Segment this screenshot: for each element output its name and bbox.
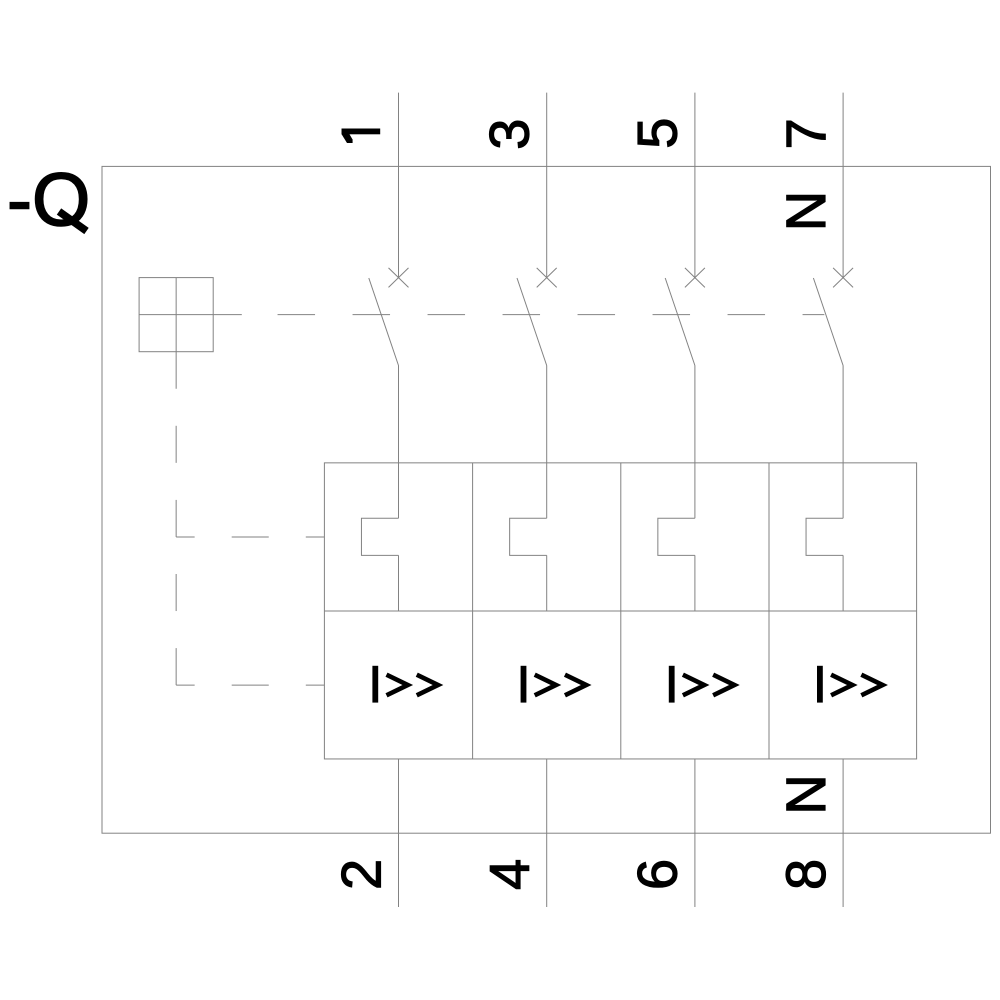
svg-text:7: 7 [774, 118, 837, 149]
svg-text:5: 5 [626, 118, 689, 149]
svg-text:N: N [774, 191, 837, 231]
svg-text:3: 3 [478, 119, 541, 150]
svg-text:2: 2 [329, 859, 392, 890]
svg-text:N: N [774, 774, 837, 814]
svg-text:4: 4 [478, 859, 541, 890]
svg-text:6: 6 [626, 859, 689, 890]
svg-text:8: 8 [774, 859, 837, 890]
